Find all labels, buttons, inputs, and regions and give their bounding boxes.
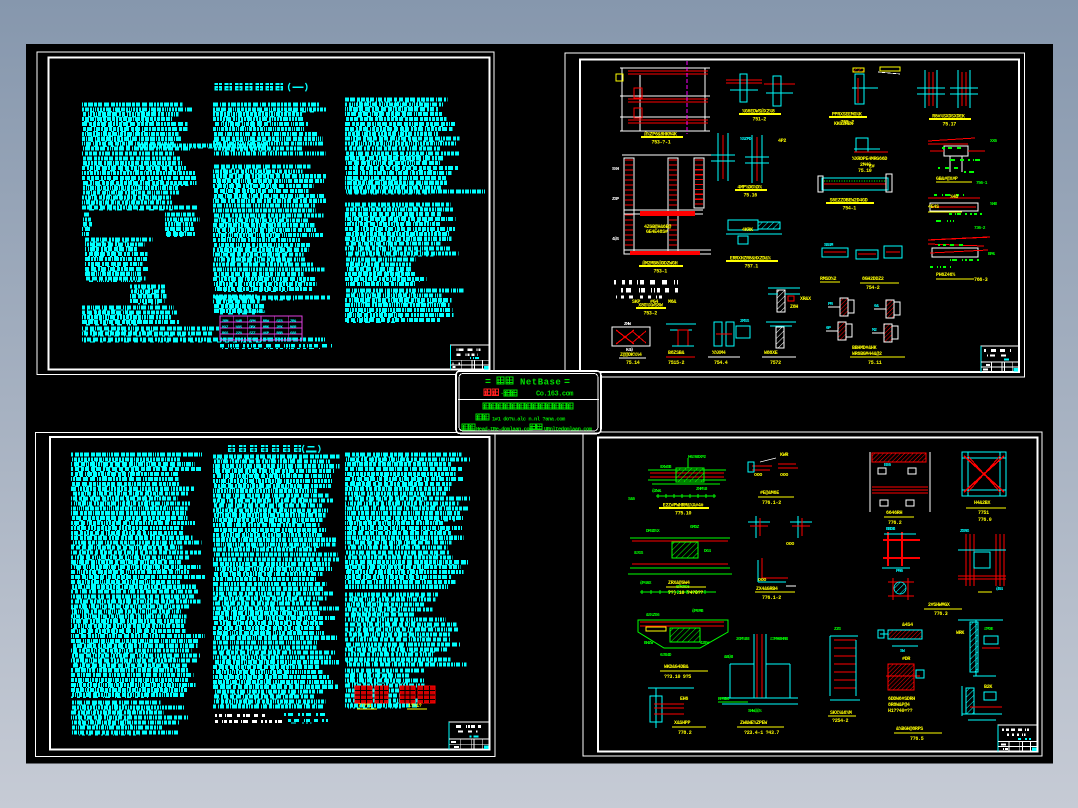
svg-text:776.5: 776.5 bbox=[910, 736, 924, 742]
svg-text:BBDB: BBDB bbox=[886, 526, 896, 532]
svg-text:XX6: XX6 bbox=[990, 138, 997, 144]
svg-text:H4&2BX: H4&2BX bbox=[974, 500, 991, 506]
svg-text:W88XE: W88XE bbox=[764, 350, 778, 356]
svg-text:GMDZ: GMDZ bbox=[690, 524, 700, 530]
svg-text:ZERG: ZERG bbox=[960, 528, 970, 534]
svg-text:NetBase: NetBase bbox=[520, 378, 561, 388]
svg-text:Head-tRe-domlaan.com: Head-tRe-domlaan.com bbox=[476, 426, 533, 433]
svg-text:688: 688 bbox=[290, 332, 297, 336]
svg-text:776.1-2: 776.1-2 bbox=[762, 500, 781, 506]
svg-text:B2K: B2K bbox=[984, 684, 992, 690]
svg-text:7572: 7572 bbox=[770, 360, 781, 366]
svg-text:URnltedomlaan.com: URnltedomlaan.com bbox=[544, 426, 593, 433]
svg-text:K%&: K%& bbox=[249, 338, 256, 342]
svg-text:8#GS: 8#GS bbox=[634, 550, 644, 556]
svg-text:4KRK: 4KRK bbox=[742, 227, 753, 233]
svg-text:6PM: 6PM bbox=[249, 320, 256, 324]
svg-text:753-2: 753-2 bbox=[644, 311, 658, 317]
svg-text:ZB&: ZB& bbox=[290, 320, 297, 324]
svg-text:75.17: 75.17 bbox=[943, 122, 957, 128]
svg-text:775.10: 775.10 bbox=[675, 511, 692, 517]
svg-text:2GM%88: 2GM%88 bbox=[736, 636, 750, 642]
svg-text:6#B4D: 6#B4D bbox=[660, 652, 672, 658]
svg-text:ooo: ooo bbox=[780, 472, 788, 478]
svg-text:#DR: #DR bbox=[902, 656, 910, 662]
svg-text:4@S: 4@S bbox=[612, 236, 619, 242]
svg-text:SHW@@%: SHW@@% bbox=[748, 708, 762, 714]
svg-text:4W@: 4W@ bbox=[222, 337, 229, 342]
svg-text:@B4: @B4 bbox=[996, 586, 1003, 592]
svg-text:KKG2HEK: KKG2HEK bbox=[834, 121, 853, 127]
svg-text:7515-2: 7515-2 bbox=[668, 360, 685, 366]
svg-text:WR6BGM44&@2: WR6BGM44&@2 bbox=[852, 351, 882, 357]
svg-text:&%BGH@8RPS: &%BGH@8RPS bbox=[896, 726, 923, 732]
svg-text:&S%ZG6: &S%ZG6 bbox=[646, 612, 660, 618]
svg-text:8%W: 8%W bbox=[236, 338, 243, 342]
svg-text:ZSP: ZSP bbox=[612, 196, 619, 202]
svg-text:?23.4-1 ?43.7: ?23.4-1 ?43.7 bbox=[744, 730, 779, 736]
svg-text:@PEMB: @PEMB bbox=[692, 608, 704, 614]
svg-text:=: = bbox=[485, 378, 491, 389]
svg-text:GZ8: GZ8 bbox=[276, 320, 283, 324]
svg-text:@6P: @6P bbox=[263, 331, 270, 336]
svg-text:736-2: 736-2 bbox=[974, 225, 986, 231]
svg-text:RPHD6: RPHD6 bbox=[718, 696, 730, 702]
svg-text:RRW: RRW bbox=[263, 320, 270, 324]
svg-text:R6S: R6S bbox=[222, 332, 229, 336]
svg-text:754.4: 754.4 bbox=[714, 360, 728, 366]
svg-text:22%: 22% bbox=[236, 332, 243, 336]
svg-text:??).10 ?4?0??: ??).10 ?4?0?? bbox=[668, 590, 703, 596]
svg-text:#PDE: #PDE bbox=[984, 626, 994, 632]
svg-text:DG4: DG4 bbox=[704, 548, 711, 554]
svg-text:754-1: 754-1 bbox=[843, 206, 857, 212]
svg-text:42EW: 42EW bbox=[700, 640, 710, 646]
svg-text:8GH2DDZ2: 8GH2DDZ2 bbox=[862, 276, 884, 282]
svg-text:S%H: S%H bbox=[612, 166, 619, 172]
svg-text:75.11: 75.11 bbox=[868, 360, 882, 366]
svg-text:??3.10 9?5: ??3.10 9?5 bbox=[664, 674, 691, 680]
svg-text:?254-2: ?254-2 bbox=[832, 718, 849, 724]
svg-text:753-1: 753-1 bbox=[654, 269, 668, 275]
svg-text:H6#68XP2: H6#68XP2 bbox=[688, 454, 706, 460]
svg-text:M8R: M8R bbox=[290, 326, 297, 330]
svg-text:B8ZSB&: B8ZSB& bbox=[668, 350, 685, 356]
svg-text:2EK: 2EK bbox=[276, 326, 283, 330]
svg-text:766-3: 766-3 bbox=[974, 277, 988, 283]
svg-text:ooo: ooo bbox=[754, 472, 762, 478]
svg-text:XHEDXD&D#EMMS2: XHEDXD&D#EMMS2 bbox=[237, 311, 266, 315]
svg-text:WKD&G4DB&: WKD&G4DB& bbox=[664, 664, 689, 670]
svg-text:75.16: 75.16 bbox=[744, 193, 758, 199]
svg-text:H1??40=??: H1??40=?? bbox=[888, 708, 913, 714]
svg-text:%%XM4: %%XM4 bbox=[712, 350, 726, 356]
svg-text:GB&#@X#P: GB&#@X#P bbox=[936, 176, 958, 182]
svg-text:753-?-1: 753-?-1 bbox=[652, 140, 671, 146]
svg-text:ooo: ooo bbox=[758, 577, 766, 583]
svg-text:754-2: 754-2 bbox=[866, 285, 880, 291]
svg-text:BHZW: BHZW bbox=[644, 640, 654, 646]
svg-text:%4R: %4R bbox=[236, 320, 243, 324]
svg-text:757.1: 757.1 bbox=[745, 264, 759, 270]
svg-text:SKX%&6%M: SKX%&6%M bbox=[830, 710, 852, 716]
svg-text:751-2: 751-2 bbox=[753, 117, 767, 123]
svg-text:=: = bbox=[564, 378, 570, 389]
svg-text:2RM: 2RM bbox=[222, 320, 229, 324]
svg-text:##MH8HRB: ##MH8HRB bbox=[770, 636, 788, 642]
svg-text:@EZ: @EZ bbox=[290, 337, 297, 342]
svg-text:R8B: R8B bbox=[276, 332, 283, 336]
svg-text:S&6: S&6 bbox=[628, 496, 635, 502]
svg-text:2#SHWMGX: 2#SHWMGX bbox=[928, 602, 950, 608]
svg-text:776.0: 776.0 bbox=[978, 517, 992, 523]
svg-text:7!??1: 7!??1 bbox=[358, 703, 372, 709]
svg-text:ZHM%8: ZHM%8 bbox=[696, 486, 708, 492]
svg-text:&B@8: &B@8 bbox=[724, 654, 734, 660]
svg-text:%GS: %GS bbox=[236, 326, 243, 330]
svg-text:ZW&WE%ZPEW: ZW&WE%ZPEW bbox=[740, 720, 767, 726]
svg-text:&4S4: &4S4 bbox=[902, 622, 913, 628]
svg-text:M6&: M6& bbox=[668, 299, 676, 305]
svg-text:1#1 do?u.alc n.nl ?ana.com: 1#1 do?u.alc n.nl ?ana.com bbox=[492, 416, 566, 423]
svg-text:1?>1?: 1?>1? bbox=[408, 703, 422, 709]
svg-text:8XWGB: 8XWGB bbox=[660, 464, 672, 470]
svg-text:4E4S: 4E4S bbox=[928, 204, 939, 210]
svg-text:PR6: PR6 bbox=[896, 568, 903, 574]
svg-text:75.10: 75.10 bbox=[858, 168, 872, 174]
svg-text:%H8: %H8 bbox=[990, 201, 997, 207]
svg-text:DM4D%X: DM4D%X bbox=[646, 528, 660, 534]
svg-text:ZHW: ZHW bbox=[624, 321, 631, 327]
svg-text:7751: 7751 bbox=[978, 510, 989, 516]
svg-text:BP&: BP& bbox=[988, 251, 995, 257]
svg-text:WRK: WRK bbox=[956, 630, 964, 636]
svg-text:X&SHPP: X&SHPP bbox=[674, 720, 691, 726]
svg-text:2G#: 2G# bbox=[276, 338, 283, 342]
svg-text:EH6: EH6 bbox=[680, 696, 688, 702]
svg-text:ZZG: ZZG bbox=[834, 626, 841, 632]
svg-text:SB4M: SB4M bbox=[824, 242, 834, 248]
svg-text:%4D: %4D bbox=[950, 194, 958, 200]
svg-text:@ZW&: @ZW& bbox=[652, 488, 662, 494]
svg-text:6646RH: 6646RH bbox=[886, 510, 903, 516]
svg-text:SZZ: SZZ bbox=[249, 332, 256, 336]
svg-text:PH6Z46%: PH6Z46% bbox=[936, 272, 955, 278]
svg-text:GE4E48S#: GE4E48S# bbox=[646, 229, 668, 235]
svg-text:Z8H: Z8H bbox=[790, 304, 798, 310]
svg-text:HXZ: HXZ bbox=[222, 326, 229, 330]
svg-text:778.2: 778.2 bbox=[678, 730, 692, 736]
svg-text:756-1: 756-1 bbox=[976, 180, 988, 186]
svg-text:HRK: HRK bbox=[263, 326, 270, 330]
svg-text:XR&X: XR&X bbox=[800, 296, 811, 302]
svg-text:@P46X: @P46X bbox=[640, 580, 652, 586]
svg-text:·: · bbox=[500, 391, 504, 399]
svg-text:2MSS: 2MSS bbox=[740, 318, 750, 324]
svg-text:%SZPD: %SZPD bbox=[740, 136, 752, 142]
svg-text:KWR: KWR bbox=[780, 452, 788, 458]
svg-text:Co.163.com: Co.163.com bbox=[536, 391, 573, 399]
svg-text:ZRX&@GW4: ZRX&@GW4 bbox=[668, 580, 690, 586]
svg-text:776.1-2: 776.1-2 bbox=[762, 595, 781, 601]
svg-text:S&B: S&B bbox=[263, 338, 270, 342]
svg-text:EE6: EE6 bbox=[884, 462, 891, 468]
svg-text:#E@&M6E: #E@&M6E bbox=[760, 490, 779, 496]
svg-text:Z@@DK%%4: Z@@DK%%4 bbox=[620, 352, 642, 358]
svg-text:776.3: 776.3 bbox=[934, 611, 948, 617]
svg-text:ZX4&GRB4: ZX4&GRB4 bbox=[756, 586, 778, 592]
svg-text:ooo: ooo bbox=[786, 541, 794, 547]
svg-text:RMSD%2: RMSD%2 bbox=[820, 276, 837, 282]
svg-text:75.14: 75.14 bbox=[626, 360, 640, 366]
svg-text:776.2: 776.2 bbox=[888, 520, 902, 526]
svg-text:DBX: DBX bbox=[249, 326, 256, 330]
svg-text:4P2: 4P2 bbox=[778, 138, 786, 144]
